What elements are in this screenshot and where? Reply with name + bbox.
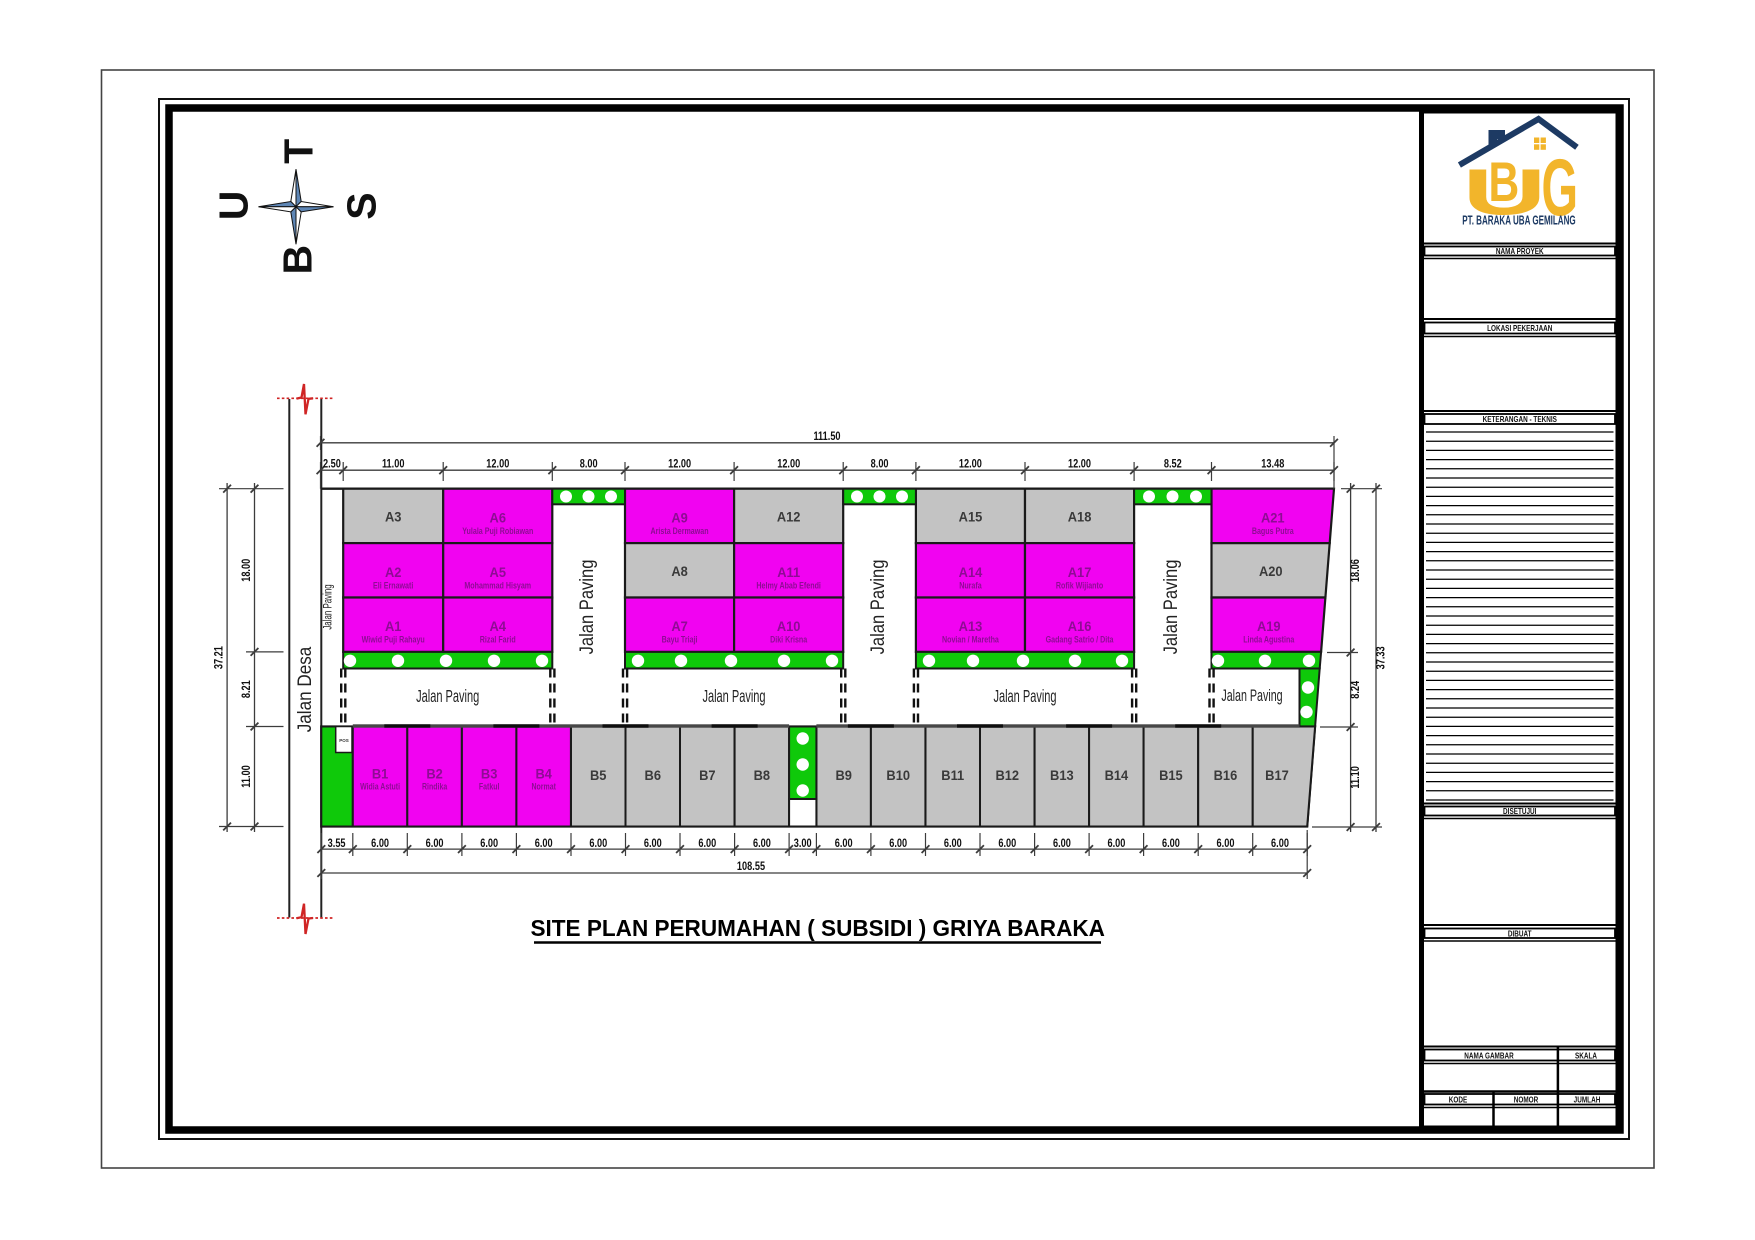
svg-text:Arista Dermawan: Arista Dermawan (651, 525, 709, 536)
svg-text:Jalan Paving: Jalan Paving (993, 688, 1056, 707)
svg-text:A7: A7 (671, 619, 687, 635)
svg-text:6.00: 6.00 (835, 838, 853, 850)
svg-text:PT. BARAKA UBA GEMILANG: PT. BARAKA UBA GEMILANG (1462, 214, 1575, 228)
svg-text:A1: A1 (385, 619, 402, 635)
svg-text:NOMOR: NOMOR (1514, 1095, 1539, 1105)
svg-text:JUMLAH: JUMLAH (1574, 1095, 1601, 1105)
svg-text:111.50: 111.50 (813, 431, 840, 443)
svg-text:Jalan Paving: Jalan Paving (322, 584, 335, 629)
svg-text:A5: A5 (490, 564, 507, 580)
svg-text:KETERANGAN - TEKNIS: KETERANGAN - TEKNIS (1483, 414, 1557, 424)
svg-text:8.52: 8.52 (1164, 459, 1182, 471)
svg-text:B10: B10 (886, 768, 910, 784)
svg-text:A12: A12 (777, 509, 801, 525)
svg-text:Helmy Abab Efendi: Helmy Abab Efendi (756, 579, 821, 590)
svg-text:B2: B2 (426, 766, 442, 782)
svg-text:B8: B8 (754, 768, 771, 784)
svg-text:A15: A15 (959, 509, 983, 525)
svg-text:Rindika: Rindika (422, 782, 448, 792)
svg-text:6.00: 6.00 (1162, 838, 1180, 850)
svg-text:Jalan Paving: Jalan Paving (416, 688, 479, 707)
svg-text:Rofik Wijianto: Rofik Wijianto (1056, 579, 1103, 590)
svg-text:12.00: 12.00 (777, 459, 800, 471)
svg-text:B9: B9 (835, 768, 851, 784)
svg-text:SKALA: SKALA (1575, 1051, 1598, 1061)
svg-text:DISETUJUI: DISETUJUI (1503, 806, 1536, 816)
svg-text:A21: A21 (1261, 510, 1285, 526)
svg-text:6.00: 6.00 (753, 838, 771, 850)
svg-text:T: T (276, 139, 322, 164)
svg-text:3.00: 3.00 (794, 838, 812, 850)
svg-text:12.00: 12.00 (486, 459, 509, 471)
svg-text:Normat: Normat (531, 782, 556, 792)
svg-text:8.24: 8.24 (1350, 681, 1362, 699)
svg-text:6.00: 6.00 (1271, 838, 1289, 850)
svg-text:37.21: 37.21 (214, 646, 226, 669)
svg-text:B16: B16 (1214, 768, 1238, 784)
svg-text:B4: B4 (535, 766, 552, 782)
svg-text:6.00: 6.00 (1107, 838, 1125, 850)
svg-text:B6: B6 (645, 768, 661, 784)
svg-text:NAMA GAMBAR: NAMA GAMBAR (1464, 1051, 1514, 1061)
svg-text:B13: B13 (1050, 768, 1074, 784)
svg-text:Wiwid Puji Rahayu: Wiwid Puji Rahayu (362, 634, 425, 645)
svg-text:6.00: 6.00 (1217, 838, 1235, 850)
svg-text:A20: A20 (1259, 563, 1283, 579)
svg-text:108.55: 108.55 (737, 861, 765, 873)
svg-text:A6: A6 (490, 510, 506, 526)
svg-text:NAMA PROYEK: NAMA PROYEK (1496, 246, 1544, 256)
svg-text:6.00: 6.00 (944, 838, 962, 850)
svg-text:A19: A19 (1257, 619, 1281, 635)
svg-text:Yulala Puji Robiawan: Yulala Puji Robiawan (462, 525, 533, 536)
svg-text:A13: A13 (959, 619, 983, 635)
svg-text:LOKASI PEKERJAAN: LOKASI PEKERJAAN (1487, 323, 1552, 333)
svg-text:12.00: 12.00 (1068, 459, 1091, 471)
svg-text:B11: B11 (941, 768, 964, 784)
svg-text:KODE: KODE (1449, 1095, 1468, 1105)
svg-text:Widia Astuti: Widia Astuti (360, 782, 400, 792)
svg-text:DIBUAT: DIBUAT (1508, 929, 1532, 939)
svg-text:A4: A4 (490, 619, 507, 635)
svg-text:A3: A3 (385, 509, 401, 525)
svg-text:B: B (275, 245, 321, 275)
svg-text:Jalan Desa: Jalan Desa (294, 646, 315, 732)
svg-text:Gadang Satrio / Dita: Gadang Satrio / Dita (1046, 634, 1114, 645)
svg-text:6.00: 6.00 (426, 838, 444, 850)
svg-text:U: U (211, 191, 257, 221)
svg-text:B7: B7 (699, 768, 715, 784)
svg-text:12.00: 12.00 (668, 459, 691, 471)
svg-text:8.00: 8.00 (580, 459, 598, 471)
svg-text:Nurafa: Nurafa (959, 579, 982, 590)
svg-text:B: B (1489, 150, 1520, 213)
svg-text:A8: A8 (671, 563, 688, 579)
svg-text:18.00: 18.00 (241, 559, 253, 582)
svg-text:A17: A17 (1068, 564, 1092, 580)
svg-text:B17: B17 (1265, 768, 1289, 784)
svg-text:6.00: 6.00 (535, 838, 553, 850)
svg-text:13.48: 13.48 (1261, 459, 1284, 471)
svg-text:A9: A9 (671, 510, 687, 526)
svg-text:Novian / Maretha: Novian / Maretha (942, 634, 999, 645)
svg-text:Jalan Paving: Jalan Paving (702, 688, 765, 707)
svg-text:3.55: 3.55 (328, 838, 346, 850)
svg-text:B12: B12 (995, 768, 1019, 784)
svg-text:Bayu Triaji: Bayu Triaji (662, 634, 698, 645)
svg-text:A14: A14 (959, 564, 983, 580)
svg-text:SITE PLAN PERUMAHAN ( SUBSIDI: SITE PLAN PERUMAHAN ( SUBSIDI ) GRIYA BA… (530, 915, 1105, 942)
svg-text:Bagus Putra: Bagus Putra (1252, 525, 1294, 536)
svg-text:11.10: 11.10 (1350, 766, 1362, 789)
svg-text:6.00: 6.00 (480, 838, 498, 850)
svg-text:B3: B3 (481, 766, 497, 782)
svg-text:Diki Krisna: Diki Krisna (770, 634, 807, 645)
svg-text:POS: POS (339, 738, 349, 743)
svg-text:A10: A10 (777, 619, 801, 635)
svg-text:Mohammad Hisyam: Mohammad Hisyam (464, 579, 531, 590)
svg-text:Linda Agustina: Linda Agustina (1243, 634, 1294, 645)
svg-text:A11: A11 (777, 564, 800, 580)
svg-text:B5: B5 (590, 768, 607, 784)
svg-text:Rizal Farid: Rizal Farid (480, 634, 516, 645)
svg-text:A2: A2 (385, 564, 401, 580)
svg-text:S: S (339, 192, 385, 219)
svg-text:37.33: 37.33 (1376, 646, 1388, 669)
svg-text:6.00: 6.00 (889, 838, 907, 850)
svg-text:11.00: 11.00 (241, 765, 253, 788)
svg-text:Jalan Paving: Jalan Paving (867, 560, 889, 655)
svg-text:A18: A18 (1068, 509, 1092, 525)
svg-text:Fatkul: Fatkul (479, 782, 500, 792)
svg-text:B15: B15 (1159, 768, 1183, 784)
svg-text:6.00: 6.00 (1053, 838, 1071, 850)
svg-text:Jalan Paving: Jalan Paving (576, 560, 598, 655)
svg-text:6.00: 6.00 (589, 838, 607, 850)
svg-text:6.00: 6.00 (998, 838, 1016, 850)
svg-text:18.06: 18.06 (1350, 559, 1362, 582)
svg-text:6.00: 6.00 (644, 838, 662, 850)
svg-text:B14: B14 (1105, 768, 1129, 784)
svg-text:Jalan Paving: Jalan Paving (1221, 687, 1282, 706)
svg-text:8.00: 8.00 (871, 459, 889, 471)
svg-text:Jalan Paving: Jalan Paving (1160, 560, 1182, 655)
svg-text:A16: A16 (1068, 619, 1092, 635)
svg-text:B1: B1 (372, 766, 389, 782)
svg-text:Eli Ernawati: Eli Ernawati (373, 579, 413, 590)
svg-text:11.00: 11.00 (382, 459, 405, 471)
svg-text:6.00: 6.00 (371, 838, 389, 850)
svg-text:12.00: 12.00 (959, 459, 982, 471)
svg-text:2.50: 2.50 (323, 459, 341, 471)
svg-text:8.21: 8.21 (241, 680, 253, 698)
svg-text:6.00: 6.00 (698, 838, 716, 850)
